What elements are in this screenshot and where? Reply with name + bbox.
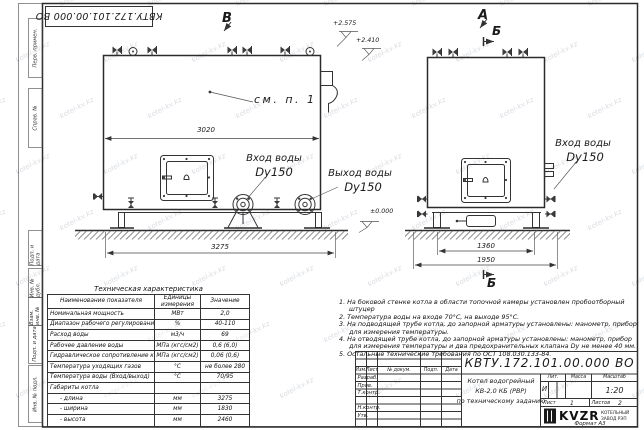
spec-table-row: - длинамм3275: [48, 394, 249, 405]
spec-table-cell: МПа (кгс/см2): [155, 341, 201, 352]
spec-table-cell: - длина: [48, 394, 155, 405]
format-label: Формат А3: [548, 421, 632, 427]
spec-table-row: Температура уходящих газов°Сне более 280: [48, 362, 249, 373]
outlet-size-label: Dy150: [340, 180, 386, 194]
spec-table-cell: 70/95: [201, 373, 249, 384]
technical-note: 4. На отводящей трубе котла, до запорной…: [339, 336, 637, 351]
spec-table-row: Температура воды (Вход/выход)°С70/95: [48, 373, 249, 384]
sheets-value: 2: [618, 400, 622, 407]
lit-value: И: [541, 385, 549, 393]
signature-row-label: Т.контр.: [358, 390, 380, 396]
flue-fitting: [321, 72, 333, 86]
dimension-base-width: 1360: [466, 242, 506, 250]
spec-table-cell: 2460: [201, 415, 249, 426]
ground-right: [396, 231, 573, 240]
elevation-ground: ±0.000: [370, 208, 393, 215]
signature-row-label: Пров.: [358, 383, 373, 389]
frame-side-label: Инв. № дубл.: [28, 268, 42, 297]
elevation-boiler-top: +2.410: [356, 37, 379, 44]
spec-table-row: Габариты котла: [48, 383, 249, 394]
dimension-body-length: 3020: [186, 126, 226, 134]
spec-table-cell: °С: [155, 373, 201, 384]
spec-table-cell: МПа (кгс/см2): [155, 351, 201, 362]
lit-header: Лит.: [541, 375, 566, 380]
spec-table-row: Рабочее давление водыМПа (кгс/см2)0,6 (6…: [48, 341, 249, 352]
frame-side-label: Подп. и дата: [28, 230, 42, 265]
technical-note: 3. На подводящей трубе котла, до запорно…: [339, 321, 637, 336]
outlet-label: Выход воды: [330, 168, 390, 179]
spec-table-cell: %: [155, 320, 201, 331]
doc-number-top-box: КВТУ.172.101.00.000 ВО: [45, 6, 153, 26]
spec-table-cell: Единицы измерения: [155, 295, 201, 309]
leader-lines: [209, 91, 577, 200]
spec-table-cell: Диапазон рабочего регулирования: [48, 320, 155, 331]
spec-table-cell: мм: [155, 404, 201, 415]
spec-table-cell: 0,06 (0,6): [201, 351, 249, 362]
signature-row-label: Н.контр.: [358, 405, 381, 411]
spec-table-cell: 1830: [201, 404, 249, 415]
scale-value: 1:20: [592, 386, 638, 395]
product-name-line1: Котел водогрейный: [462, 377, 540, 385]
spec-table-cell: °С: [155, 362, 201, 373]
spec-table-cell: 3275: [201, 394, 249, 405]
spec-table-cell: Рабочее давление воды: [48, 341, 155, 352]
see-note-callout: см. п. 1: [254, 93, 317, 106]
spec-table-cell: Температура уходящих газов: [48, 362, 155, 373]
sheets-label: Листов: [592, 400, 611, 406]
spec-table-cell: мм: [155, 394, 201, 405]
spec-table-cell: 0,6 (6,0): [201, 341, 249, 352]
rev-header-izm: Изм.: [356, 368, 367, 373]
spec-table-row: - высотамм2460: [48, 415, 249, 426]
spec-table-cell: - высота: [48, 415, 155, 426]
boiler-side-view: [104, 56, 338, 229]
product-name-line2: КВ-2,0 КБ (РВР): [462, 387, 540, 395]
sheet-value: 1: [570, 400, 574, 407]
spec-table-row: Гидравлическое сопротивление котлаМПа (к…: [48, 351, 249, 362]
technical-note: 1. На боковой стенке котла в области топ…: [339, 299, 637, 314]
frame-side-label: Справ. №: [28, 88, 42, 147]
spec-table-row: Наименование показателяЕдиницы измерения…: [48, 295, 249, 309]
spec-table-cell: не более 280: [201, 362, 249, 373]
frame-side-label: Инв. № подл.: [28, 365, 42, 422]
signature-row-label: Разраб.: [358, 375, 378, 381]
view-marker-a: А: [478, 8, 488, 23]
frame-side-label: Перв. примен.: [28, 18, 42, 77]
technical-notes: 1. На боковой стенке котла в области топ…: [339, 299, 637, 358]
spec-table-title: Техническая характеристика: [47, 285, 250, 293]
product-name-line3: по техническому заданию: [462, 397, 540, 405]
spec-table-cell: Номинальная мощность: [48, 309, 155, 320]
spec-table-row: - ширинамм1830: [48, 404, 249, 415]
spec-table-cell: - ширина: [48, 404, 155, 415]
spec-table-cell: Температура воды (Вход/выход): [48, 373, 155, 384]
spec-table-cell: мм: [155, 415, 201, 426]
spec-table-cell: Наименование показателя: [48, 295, 155, 309]
spec-table-cell: 40-110: [201, 320, 249, 331]
elevation-marks: [337, 32, 381, 233]
signature-row-label: Утв.: [358, 413, 369, 419]
drawing-sheet: kotel-kv.kzkotel-kv.kzkotel-kv.kzkotel-k…: [0, 0, 644, 430]
sheet-label: Лист: [543, 400, 556, 406]
rev-header-podp: Подп.: [421, 368, 442, 373]
rev-header-data: Дата: [442, 368, 462, 373]
scale-header: Масштаб: [592, 375, 638, 380]
dimension-overall-width: 1950: [466, 256, 506, 264]
spec-table-cell: м3/ч: [155, 330, 201, 341]
ground-left: [66, 231, 351, 240]
inlet-size-label: Dy150: [252, 165, 296, 179]
dimension-overall-length: 3275: [200, 243, 240, 251]
spec-table-row: Номинальная мощностьМВт2,0: [48, 309, 249, 320]
spec-table-cell: 69: [201, 330, 249, 341]
spec-table-cell: МВт: [155, 309, 201, 320]
spec-table-cell: Расход воды: [48, 330, 155, 341]
logo-subtitle-line1: КОТЕЛЬНЫЙ: [601, 411, 629, 416]
elevation-valve-top: +2.575: [333, 20, 356, 27]
rev-header-list: Лист: [367, 368, 378, 373]
spec-table-row: Диапазон рабочего регулирования%40-110: [48, 320, 249, 331]
spec-table: Техническая характеристика Наименование …: [47, 285, 250, 427]
view-marker-b-top: Б: [492, 24, 501, 38]
spec-table-cell: Значение: [201, 295, 249, 309]
rev-header-ndokum: № докум.: [378, 368, 421, 373]
spec-table-cell: [155, 383, 201, 394]
frame-side-label: Подп. и дата: [28, 325, 42, 363]
view-marker-b-bottom: Б: [487, 276, 496, 290]
mass-header: Масса: [566, 375, 592, 380]
end-inlet-label: Вход воды: [556, 138, 610, 149]
frame-side-label: Взам. инв. №: [28, 297, 42, 325]
spec-table-row: Расход водым3/ч69: [48, 330, 249, 341]
spec-table-cell: 2,0: [201, 309, 249, 320]
end-inlet-size-label: Dy150: [563, 150, 607, 164]
spec-table-cell: Габариты котла: [48, 383, 155, 394]
spec-table-cell: Гидравлическое сопротивление котла: [48, 351, 155, 362]
spec-table-cell: [201, 383, 249, 394]
inlet-label: Вход воды: [247, 153, 301, 164]
view-marker-v: В: [222, 11, 232, 26]
title-block-doc-number: КВТУ.172.101.00.000 ВО: [462, 353, 637, 372]
